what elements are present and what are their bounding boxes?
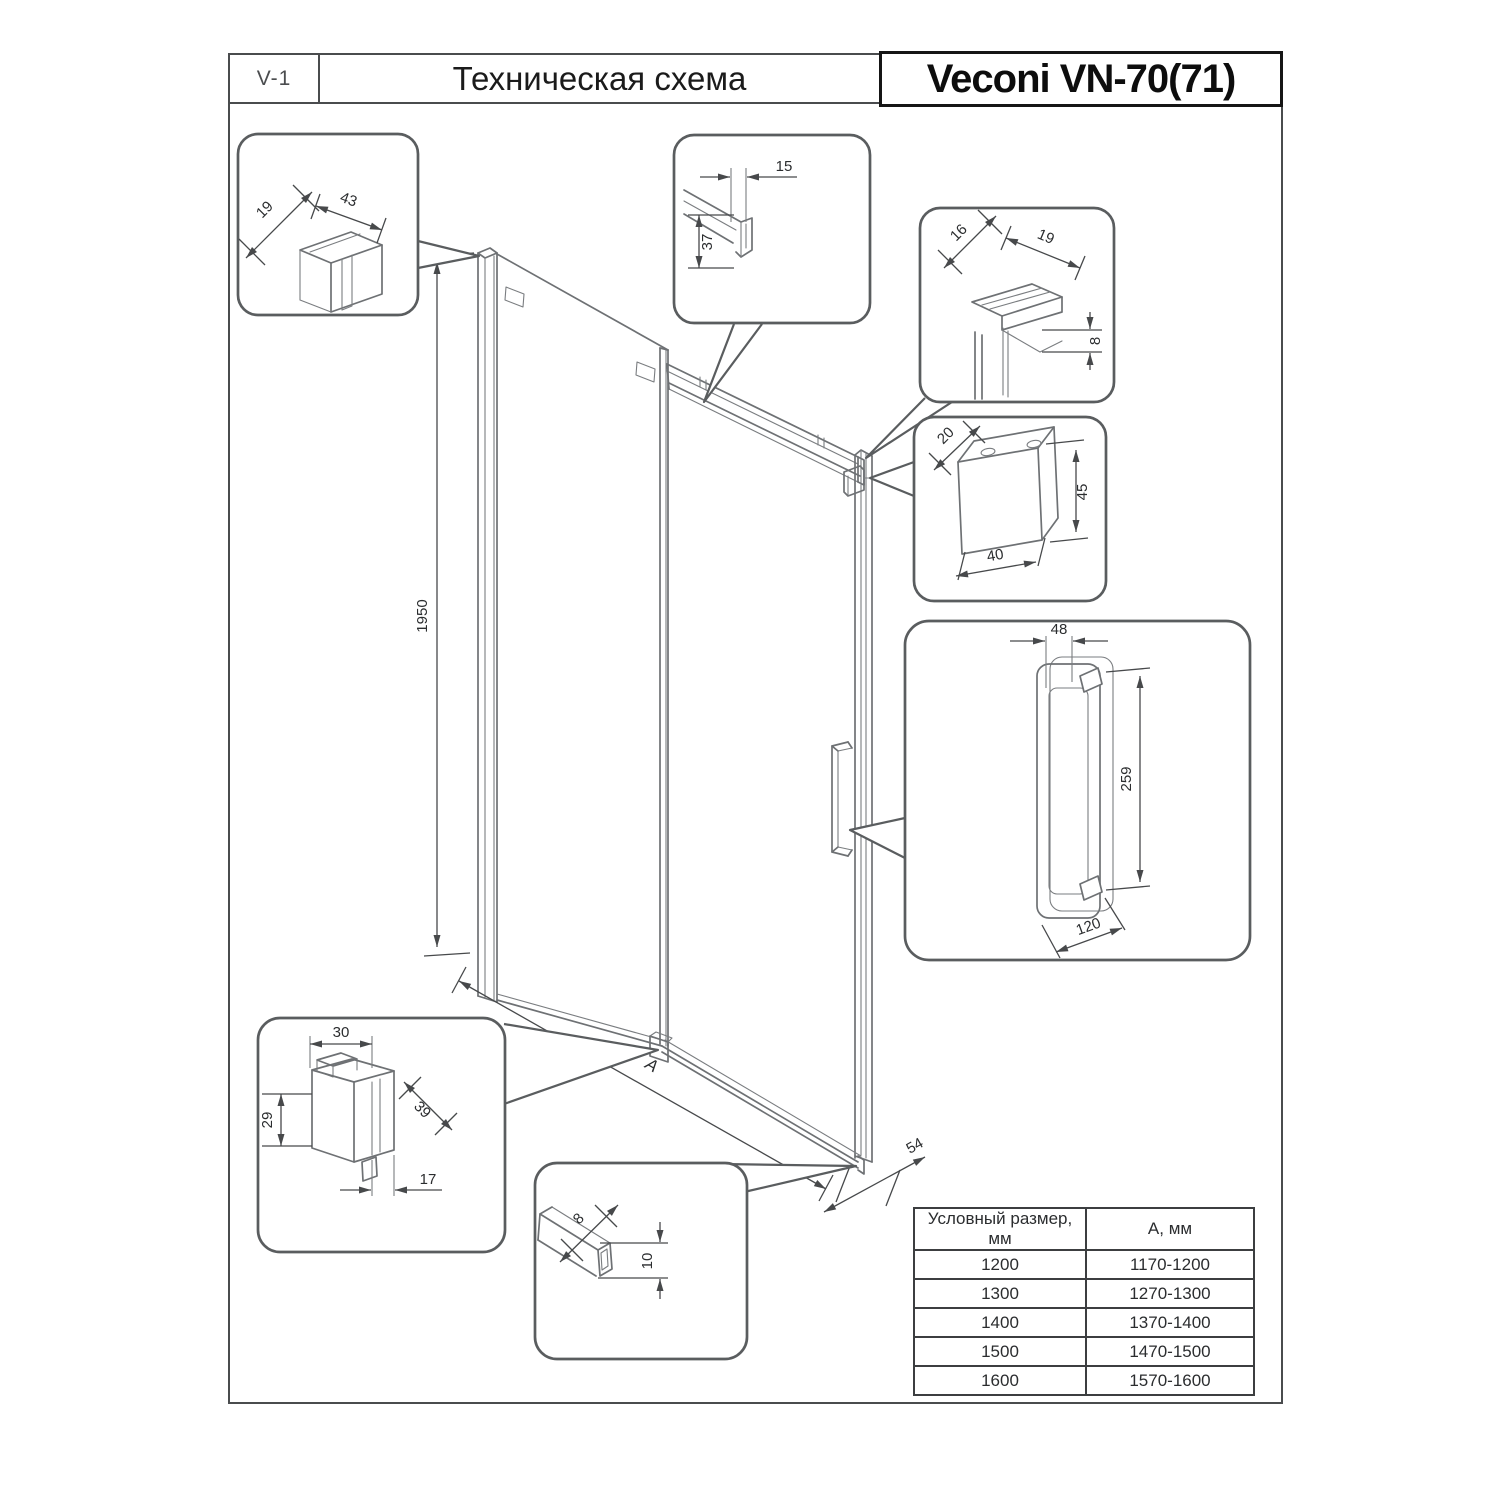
dim-guide-height: 29	[259, 1112, 276, 1129]
size-table: Условный размер, мм А, мм 1200 1170-1200…	[913, 1207, 1255, 1396]
dim-corner-thickness: 8	[1087, 337, 1104, 345]
detail-wall-bracket: 20 45 40	[870, 417, 1106, 601]
detail-handle: 48 259 120	[850, 621, 1250, 960]
dim-bracket-width: 40	[986, 546, 1005, 566]
size-table-col-nominal: Условный размер, мм	[914, 1208, 1086, 1250]
nominal-size: 1200	[914, 1250, 1086, 1279]
table-row: 1500 1470-1500	[914, 1337, 1254, 1366]
a-range: 1470-1500	[1086, 1337, 1254, 1366]
dim-bottom-rail-depth: 54	[903, 1135, 926, 1158]
dim-top-profile-height: 37	[699, 234, 716, 251]
technical-drawing-page: V-1 Техническая схема Veconi VN-70(71)	[0, 0, 1500, 1500]
table-row: 1400 1370-1400	[914, 1308, 1254, 1337]
table-row: 1200 1170-1200	[914, 1250, 1254, 1279]
nominal-size: 1600	[914, 1366, 1086, 1395]
nominal-size: 1300	[914, 1279, 1086, 1308]
detail-bottom-rail: 8 10	[535, 1163, 856, 1359]
table-row: 1300 1270-1300	[914, 1279, 1254, 1308]
a-range: 1270-1300	[1086, 1279, 1254, 1308]
detail-wall-profile: 19 43	[238, 134, 479, 315]
dim-overall-height: 1950	[414, 599, 431, 632]
dim-rail-height: 10	[639, 1253, 656, 1270]
detail-top-profile: 15 37	[674, 135, 870, 402]
a-range: 1370-1400	[1086, 1308, 1254, 1337]
dim-overall-width: A	[641, 1054, 661, 1077]
nominal-size: 1400	[914, 1308, 1086, 1337]
a-range: 1570-1600	[1086, 1366, 1254, 1395]
dim-guide-offset: 17	[420, 1171, 437, 1188]
dim-handle-length: 259	[1118, 766, 1135, 791]
dim-handle-top-width: 48	[1051, 621, 1068, 638]
dim-bracket-height: 45	[1074, 484, 1091, 501]
size-table-header-row: Условный размер, мм А, мм	[914, 1208, 1254, 1250]
schematic-canvas: 1950 A 54	[0, 0, 1500, 1500]
a-range: 1170-1200	[1086, 1250, 1254, 1279]
nominal-size: 1500	[914, 1337, 1086, 1366]
dim-guide-width: 30	[333, 1024, 350, 1041]
dim-top-profile-width: 15	[776, 158, 793, 175]
table-row: 1600 1570-1600	[914, 1366, 1254, 1395]
size-table-col-a: А, мм	[1086, 1208, 1254, 1250]
